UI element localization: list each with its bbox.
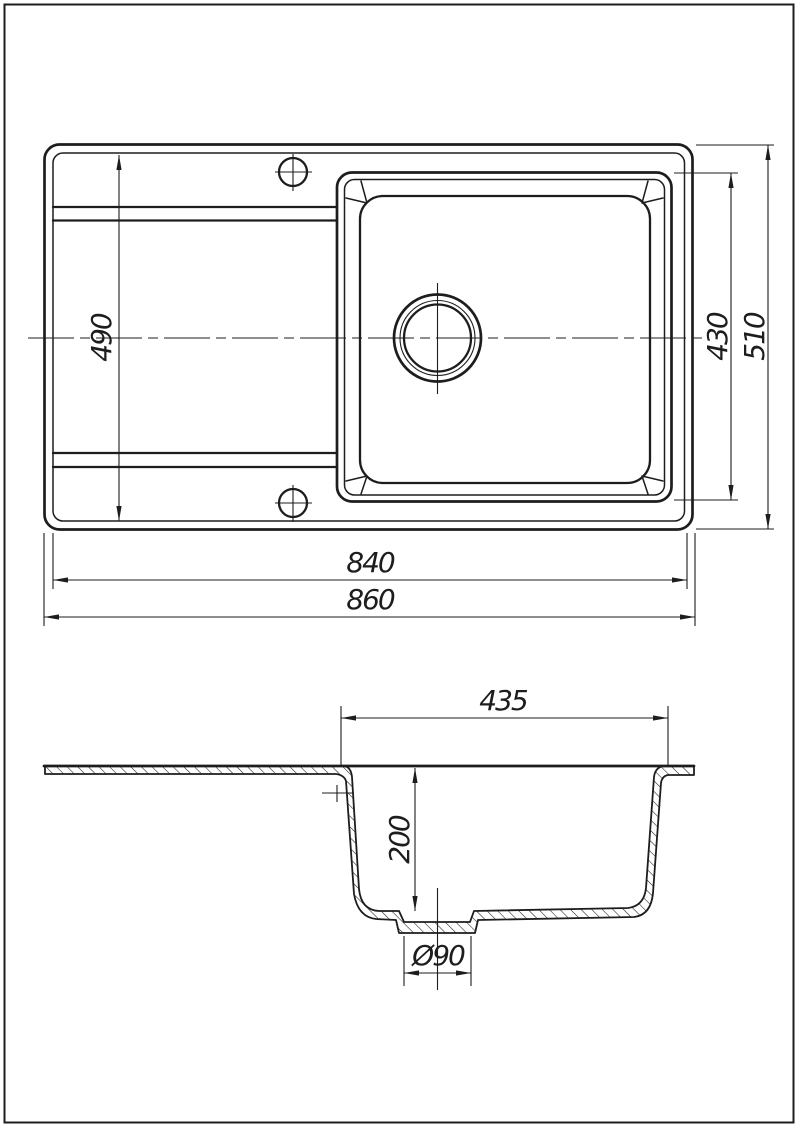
section-body xyxy=(45,766,694,933)
dim-label-435: 435 xyxy=(479,684,528,717)
drawing-sheet: 490 430 510 840 xyxy=(0,0,798,1127)
faucet-hole-top xyxy=(275,154,312,191)
faucet-hole-bottom xyxy=(275,485,312,522)
dim-label-430: 430 xyxy=(701,312,734,361)
dim-label-490: 490 xyxy=(85,313,118,362)
sink-technical-drawing: 490 430 510 840 xyxy=(0,0,798,1127)
dim-label-510: 510 xyxy=(738,312,771,361)
top-view: 490 430 510 840 xyxy=(28,145,774,627)
sink-rim xyxy=(53,153,685,521)
dim-label-860: 860 xyxy=(346,583,395,616)
dim-label-840: 840 xyxy=(346,546,395,579)
dim-bowl-top-width: 435 xyxy=(341,684,668,765)
dim-label-200: 200 xyxy=(383,815,416,864)
dim-bowl-depth: 200 xyxy=(383,768,418,911)
bowl xyxy=(337,173,672,502)
dim-label-diameter-90: Ø90 xyxy=(411,939,465,972)
dim-bowl-length: 430 xyxy=(674,173,738,500)
side-view: 435 200 Ø90 xyxy=(44,684,694,990)
dim-inner-length: 840 xyxy=(53,533,687,589)
